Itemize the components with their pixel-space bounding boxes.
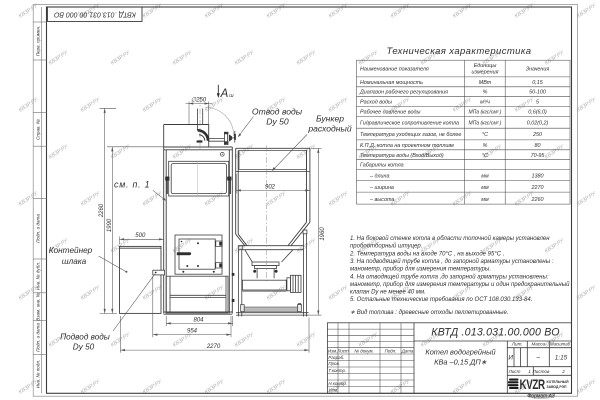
svg-text:2. Температура воды на входе: 2. Температура воды на входе 70°С , на в… [349, 251, 504, 257]
svg-text:МПа (кгс/см² ): МПа (кгс/см² ) [469, 110, 502, 116]
svg-text:1:15: 1:15 [555, 355, 568, 362]
svg-text:Разраб.: Разраб. [328, 355, 344, 360]
svg-text:клапан Dy не менее 40 мм.: клапан Dy не менее 40 мм. [350, 290, 426, 296]
svg-text:Т.контр.: Т.контр. [328, 368, 346, 373]
svg-text:Лист: Лист [508, 369, 521, 374]
svg-text:Dy 50: Dy 50 [73, 342, 95, 351]
svg-text:KVZR: KVZR [520, 376, 546, 392]
svg-text:шлака: шлака [62, 257, 87, 266]
svg-text:МВт: МВт [479, 80, 492, 86]
svg-text:°С: °С [482, 153, 488, 159]
svg-text:Бункер: Бункер [316, 113, 344, 123]
svg-text:Н.контр.: Н.контр. [328, 381, 347, 386]
svg-text:Подп. и дата: Подп. и дата [36, 323, 41, 352]
svg-text:4. На отводящей трубе котла ,: 4. На отводящей трубе котла ,до запорной… [350, 273, 549, 280]
svg-text:Гидравлическое сопротивление к: Гидравлическое сопротивление котла [360, 121, 459, 127]
svg-text:– длина: – длина [369, 174, 389, 180]
svg-text:КОТЕЛЬНЫЙ: КОТЕЛЬНЫЙ [547, 380, 570, 384]
svg-text:Справ. №: Справ. № [36, 119, 41, 140]
svg-text:пробоотборный штуцер.: пробоотборный штуцер. [350, 243, 422, 250]
svg-text:Инв. № подл.: Инв. № подл. [36, 360, 41, 389]
svg-text:902: 902 [265, 184, 276, 190]
svg-text:70-95: 70-95 [531, 153, 546, 159]
svg-text:2260: 2260 [99, 203, 105, 218]
svg-text:Утв.: Утв. [328, 387, 338, 392]
svg-text:954: 954 [187, 329, 198, 335]
svg-text:%: % [483, 90, 488, 96]
svg-text:И: И [508, 355, 513, 362]
svg-text:Диапазон рабочего регулировани: Диапазон рабочего регулирования [359, 90, 448, 96]
svg-text:Габариты котла: Габариты котла [360, 163, 404, 169]
svg-text:Техническая характеристика: Техническая характеристика [387, 46, 532, 57]
svg-text:80: 80 [535, 143, 541, 149]
svg-text:2: 2 [561, 369, 565, 374]
svg-text:%: % [483, 143, 488, 149]
svg-text:измерения: измерения [472, 70, 499, 76]
svg-text:– высота: – высота [369, 197, 394, 203]
svg-text:Отвод воды: Отвод воды [252, 107, 303, 117]
svg-text:Котел водогрейный: Котел водогрейный [425, 348, 495, 357]
svg-text:Дата: Дата [401, 349, 414, 354]
svg-text:КВа –0,15 ДП∗: КВа –0,15 ДП∗ [434, 358, 488, 367]
svg-text:2270: 2270 [206, 344, 221, 350]
svg-text:Наименование показателя: Наименование показателя [360, 67, 429, 73]
svg-text:Изм.Лист: Изм.Лист [328, 349, 349, 354]
svg-text:500: 500 [135, 233, 146, 239]
svg-text:1380: 1380 [532, 174, 544, 180]
svg-text:1960: 1960 [320, 227, 326, 241]
svg-text:см. п. 1: см. п. 1 [114, 180, 150, 190]
svg-text:манометр, прибор для измерения: манометр, прибор для измерения температу… [350, 267, 491, 273]
svg-text:5. Остальные технические треб: 5. Остальные технические требования по О… [350, 297, 532, 303]
svg-text:Значения: Значения [526, 67, 550, 73]
svg-text:∗ Вид топлива : древесные от: ∗ Вид топлива : древесные отходы пеллети… [350, 310, 508, 316]
svg-text:Инв. № дубл.: Инв. № дубл. [36, 262, 41, 290]
svg-text:1990: 1990 [107, 218, 113, 232]
svg-text:Формат А3: Формат А3 [527, 394, 555, 400]
svg-text:Температура воды (Вход/Выход): Температура воды (Вход/Выход) [360, 153, 444, 159]
svg-text:250: 250 [532, 132, 542, 138]
svg-text:3. На подводящей трубе котла: 3. На подводящей трубе котла , до запорн… [350, 258, 554, 265]
svg-text:м³/ч: м³/ч [480, 100, 490, 106]
svg-text:Подп. и дата: Подп. и дата [36, 214, 41, 243]
svg-text:Расход воды: Расход воды [360, 100, 392, 106]
svg-text:К.П.Д. котла на проектном топл: К.П.Д. котла на проектном топливе [360, 143, 454, 149]
svg-text:0,6(6,0): 0,6(6,0) [528, 110, 547, 116]
svg-text:0,02(0,2): 0,02(0,2) [527, 121, 549, 127]
svg-text:МПа (кгс/см² ): МПа (кгс/см² ) [469, 121, 502, 127]
svg-text:КВТД .013.031.00.000 ВО: КВТД .013.031.00.000 ВО [54, 10, 136, 17]
svg-text:ЗАВОД РЭП: ЗАВОД РЭП [547, 385, 568, 389]
svg-text:804: 804 [193, 317, 204, 323]
svg-text:– ширина: – ширина [369, 185, 394, 191]
svg-text:Пров.: Пров. [328, 361, 340, 366]
svg-text:Единицы: Единицы [474, 63, 497, 69]
svg-text:–: – [536, 355, 541, 362]
svg-text:ш: ш [229, 93, 234, 99]
svg-text:0,15: 0,15 [532, 80, 543, 86]
svg-text:манометр, прибор для измерения: манометр, прибор для измерения температу… [350, 281, 570, 288]
svg-text:Взам. инв. №: Взам. инв. № [36, 292, 41, 320]
svg-text:№ докум.: № докум. [354, 349, 373, 354]
svg-text:Лит.: Лит. [511, 342, 523, 347]
svg-text:Перв. примен.: Перв. примен. [36, 26, 41, 57]
svg-text:Подп.: Подп. [385, 349, 397, 354]
svg-text:Температура уходящих газов, не: Температура уходящих газов, не более [360, 132, 461, 138]
svg-text:°С: °С [482, 132, 488, 138]
svg-text:мм: мм [481, 185, 489, 191]
svg-text:Подвод воды: Подвод воды [60, 332, 110, 341]
svg-text:Номинальная мощность: Номинальная мощность [360, 80, 423, 86]
svg-text:КВТД .013.031.00.000 ВО: КВТД .013.031.00.000 ВО [431, 327, 559, 339]
svg-text:Контейнер: Контейнер [49, 246, 93, 255]
svg-text:2270: 2270 [531, 185, 544, 191]
svg-text:мм: мм [481, 174, 489, 180]
svg-text:1. На боковой стенке котла в: 1. На боковой стенке котла в области топ… [350, 235, 550, 242]
svg-text:Рабочее давление воды: Рабочее давление воды [360, 110, 420, 116]
svg-text:А: А [220, 88, 229, 100]
svg-text:Масштаб: Масштаб [550, 342, 571, 347]
svg-text:1: 1 [528, 369, 531, 374]
svg-text:Масса: Масса [532, 342, 546, 347]
svg-text:50-100: 50-100 [529, 90, 546, 96]
svg-text:мм: мм [481, 197, 489, 203]
svg-text:расходный: расходный [307, 124, 351, 134]
svg-text:∅250: ∅250 [191, 96, 207, 103]
svg-text:2260: 2260 [531, 197, 544, 203]
svg-text:Dy 50: Dy 50 [266, 116, 289, 126]
svg-text:Листов: Листов [532, 369, 550, 374]
